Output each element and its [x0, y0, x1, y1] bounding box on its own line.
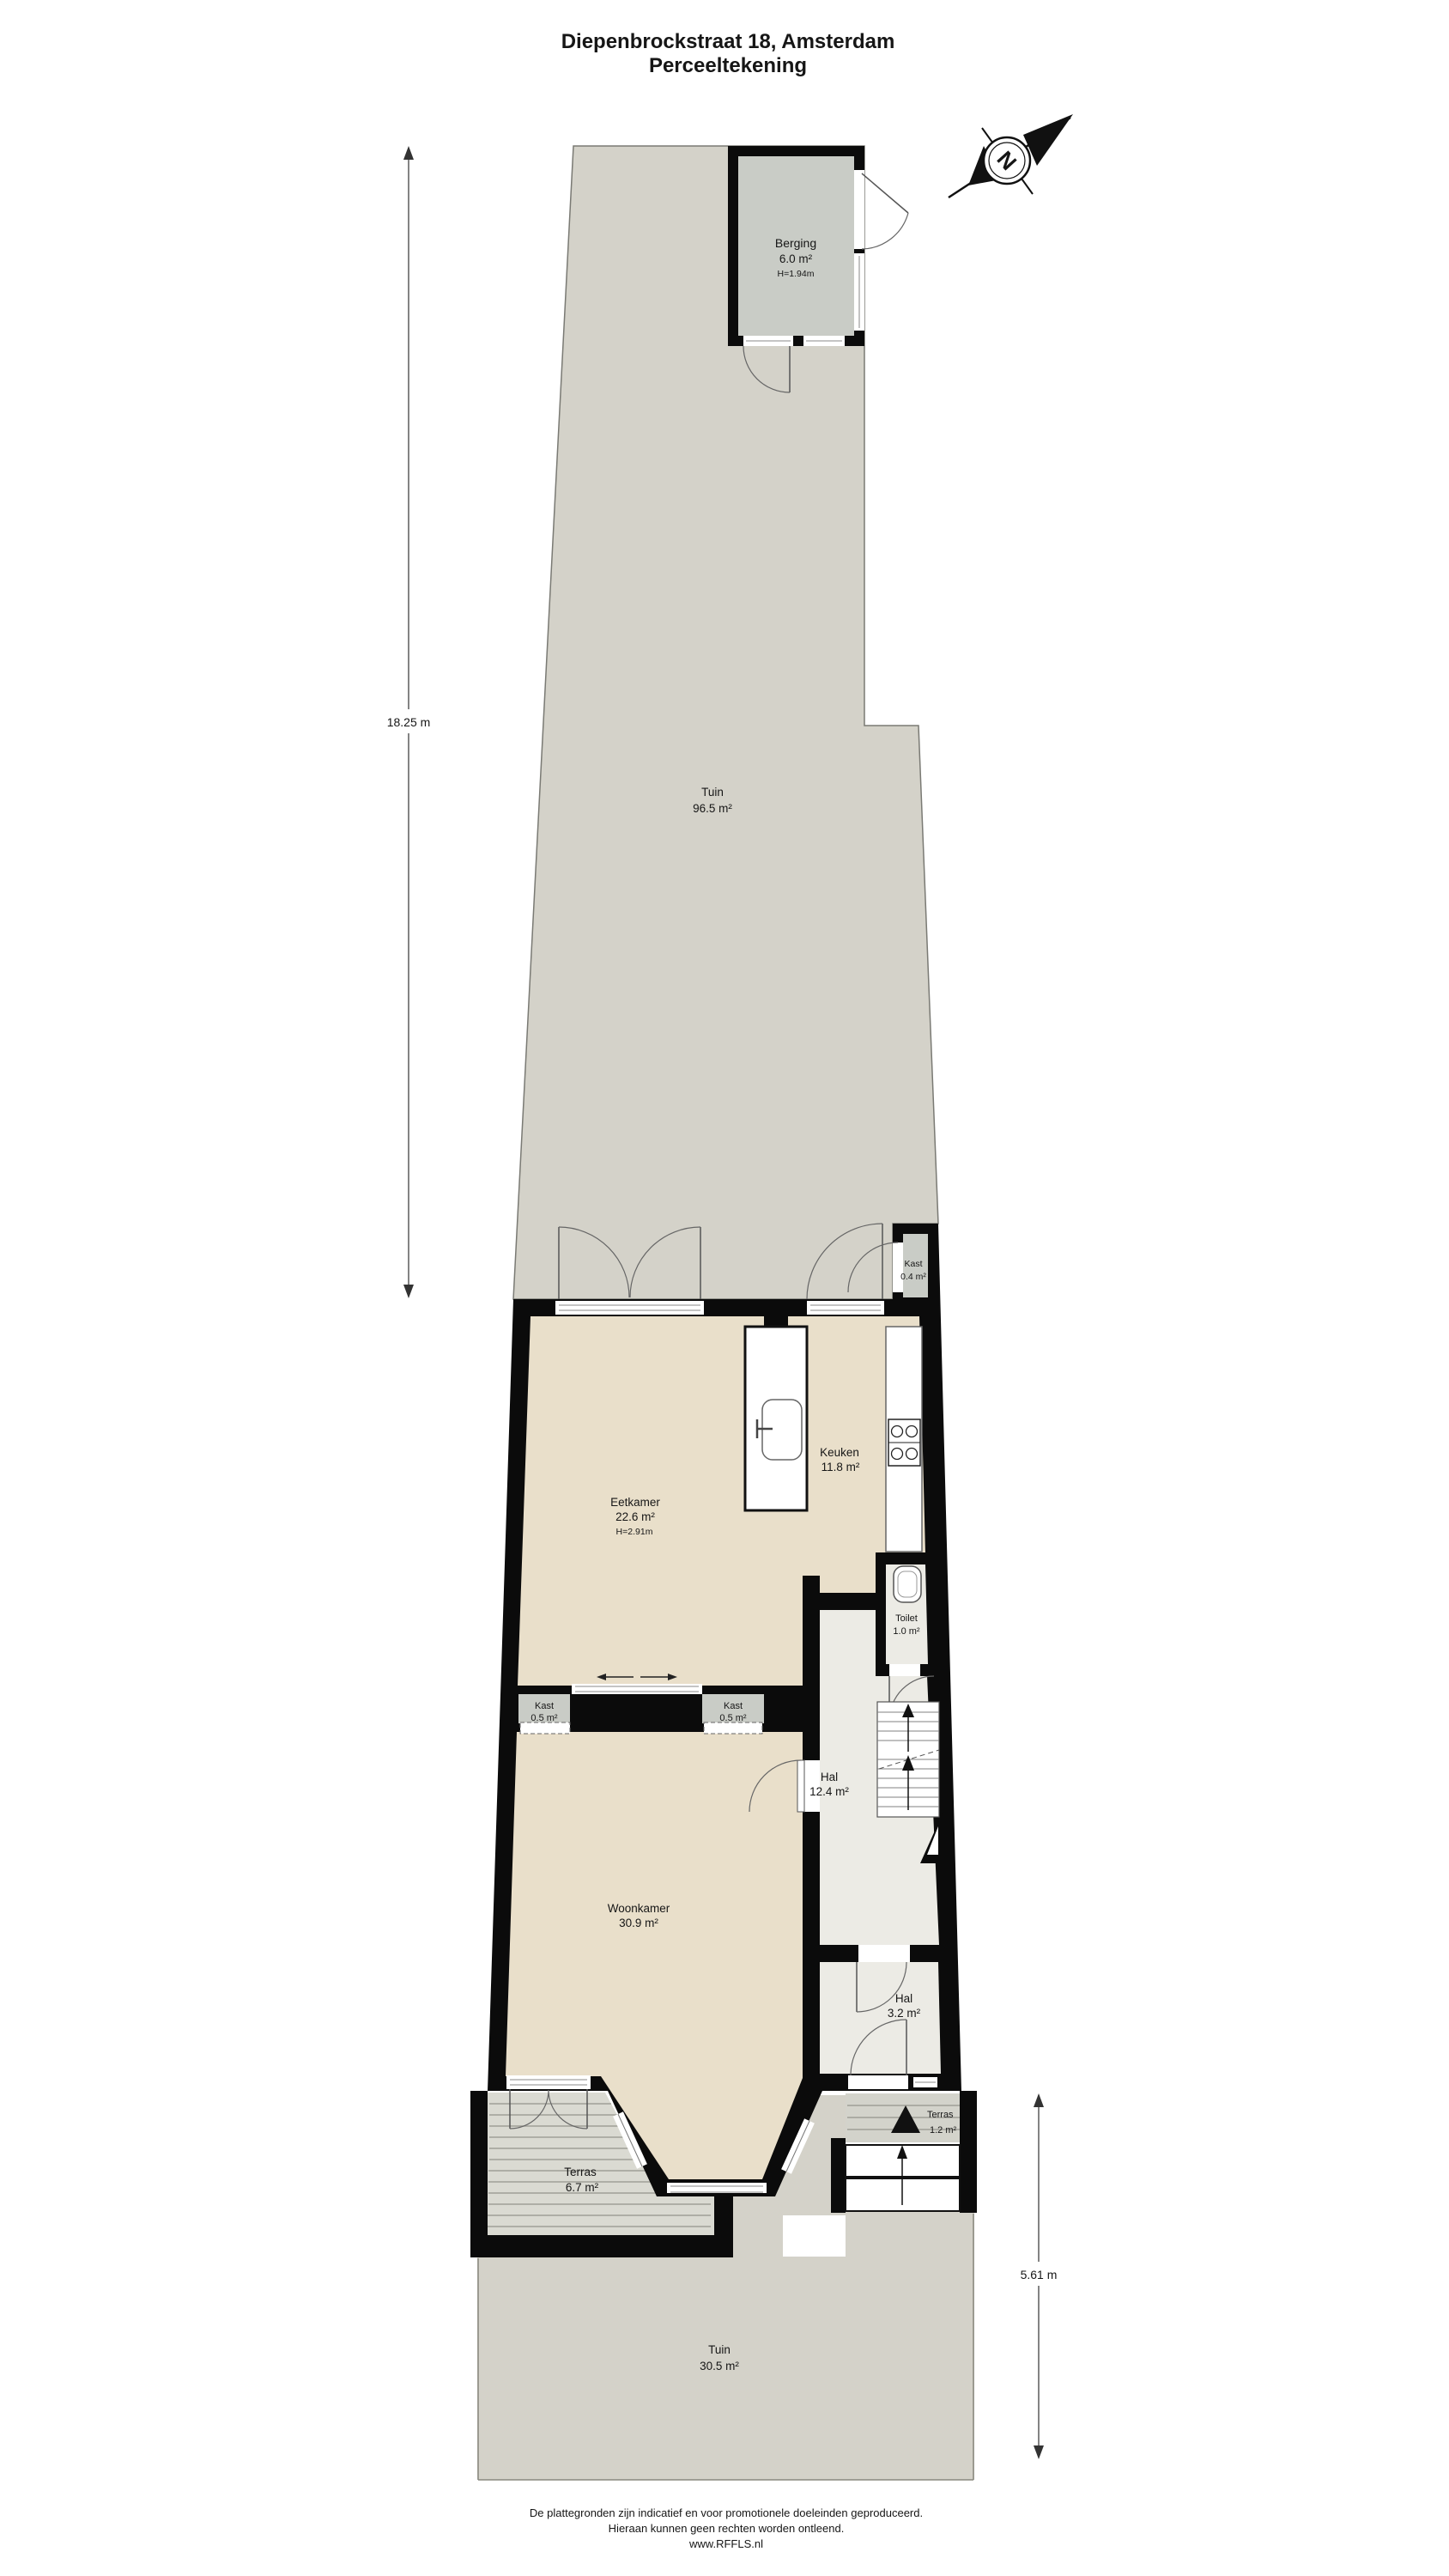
garden-top: Tuin 96.5 m²: [513, 146, 938, 1299]
door-toilet: [889, 1664, 920, 1676]
toilet-icon: [894, 1566, 921, 1602]
dimension-left-arrow-top: [403, 146, 414, 160]
garden-bottom-label: Tuin: [708, 2343, 731, 2356]
page-title: Diepenbrockstraat 18, Amsterdam: [561, 30, 895, 53]
page-subtitle: Perceeltekening: [649, 54, 807, 77]
eetkamer-area-label: 22.6 m²: [615, 1510, 655, 1523]
kast-right-area-label: 0.5 m²: [719, 1713, 747, 1723]
stove-icon: [888, 1419, 920, 1466]
kast-right-label: Kast: [724, 1701, 743, 1711]
terrace-rear-area-label: 6.7 m²: [566, 2181, 599, 2194]
kast-tuin-door: [893, 1242, 903, 1292]
kast-tuin-label: Kast: [904, 1259, 922, 1269]
hal-entree-label: Hal: [895, 1992, 912, 2005]
dimension-right-arrow-bottom: [1034, 2445, 1044, 2459]
terrace-wall-bottom: [470, 2235, 733, 2257]
kast-left-label: Kast: [535, 1701, 554, 1711]
floorplan-drawing: Diepenbrockstraat 18, Amsterdam Perceelt…: [0, 0, 1449, 2576]
terrace-front-label: Terras: [927, 2110, 954, 2120]
sliding-doors: [572, 1684, 702, 1694]
door-hal-woonkamer-leaf: [797, 1760, 804, 1812]
garden-top-area-label: 96.5 m²: [693, 802, 732, 815]
garden-top-label: Tuin: [701, 786, 724, 799]
eetkamer-label: Eetkamer: [610, 1496, 660, 1509]
hal-label: Hal: [821, 1771, 838, 1783]
dimension-right: 5.61 m: [1003, 2093, 1075, 2459]
garden-top-area: [513, 146, 938, 1299]
woonkamer-area-label: 30.9 m²: [619, 1917, 658, 1929]
french-door-terrace: [506, 2075, 591, 2089]
berging-door: [854, 170, 864, 249]
berging-label: Berging: [775, 236, 816, 250]
kast-left-area-label: 0.5 m²: [530, 1713, 558, 1723]
keuken-area-label: 11.8 m²: [822, 1461, 860, 1473]
steps-wall-left: [831, 2138, 846, 2213]
hal-entree-area-label: 3.2 m²: [888, 2007, 921, 2020]
bay-window-center: [667, 2183, 767, 2193]
footer: De plattegronden zijn indicatief en voor…: [530, 2506, 923, 2550]
terrace-wall-left: [470, 2091, 488, 2244]
floor-hal-entree: [820, 1962, 941, 2074]
footer-line1: De plattegronden zijn indicatief en voor…: [530, 2506, 923, 2519]
berging-door-swing: [862, 213, 908, 249]
garden-bottom-fill-3: [846, 2211, 974, 2258]
garden-bottom-area-label: 30.5 m²: [700, 2360, 739, 2372]
footer-line2: Hieraan kunnen geen rechten worden ontle…: [609, 2522, 845, 2535]
berging-door-leaf: [862, 173, 908, 213]
dimension-right-arrow-top: [1034, 2093, 1044, 2107]
toilet-area-label: 1.0 m²: [893, 1626, 920, 1637]
dimension-right-label: 5.61 m: [1021, 2268, 1058, 2281]
compass-icon: N: [949, 114, 1073, 197]
woonkamer-label: Woonkamer: [608, 1902, 670, 1915]
kast-tuin-area-label: 0.4 m²: [900, 1272, 926, 1282]
door-hal-entree: [858, 1945, 910, 1962]
floorplan-page: Diepenbrockstraat 18, Amsterdam Perceelt…: [0, 0, 1449, 2576]
eetkamer-height-label: H=2.91m: [616, 1527, 653, 1537]
footer-website: www.RFFLS.nl: [688, 2537, 763, 2550]
dimension-left-label: 18.25 m: [387, 715, 431, 729]
french-door-top: [555, 1301, 704, 1315]
keuken-label: Keuken: [820, 1446, 859, 1459]
berging-area-label: 6.0 m²: [779, 252, 813, 265]
berging-height-label: H=1.94m: [778, 269, 815, 279]
terrace-front-area-label: 1.2 m²: [930, 2125, 957, 2136]
garden-door: [807, 1301, 884, 1315]
hal-area-label: 12.4 m²: [809, 1785, 849, 1798]
front-wall-right: [960, 2091, 977, 2213]
entrance-door: [848, 2075, 908, 2089]
dimension-left: 18.25 m: [373, 146, 445, 1298]
kast-right-front: [704, 1722, 762, 1734]
toilet-label: Toilet: [895, 1613, 918, 1624]
terrace-front: Terras 1.2 m²: [831, 2091, 977, 2213]
dimension-left-arrow-bottom: [403, 1285, 414, 1298]
kast-left-front: [520, 1722, 570, 1734]
terrace-rear-label: Terras: [564, 2166, 597, 2178]
